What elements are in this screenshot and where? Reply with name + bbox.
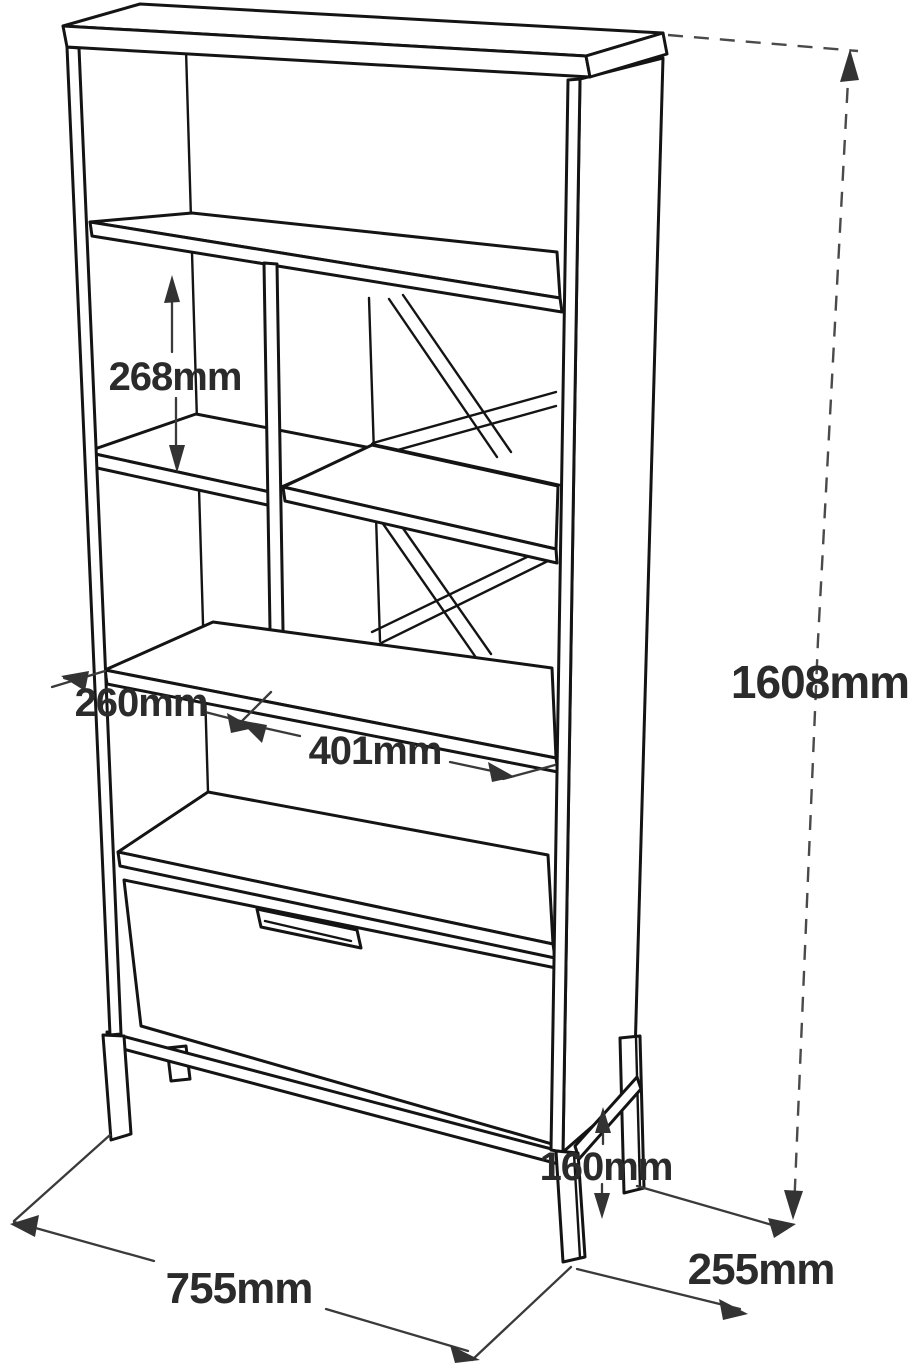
dim-label-leg-height: 160mm	[540, 1145, 673, 1189]
shelf-1	[90, 213, 562, 312]
x-brace-upper	[373, 295, 556, 457]
arrow-left-icon	[10, 1215, 39, 1237]
arrow-downright-icon	[719, 1299, 748, 1320]
arrow-up-icon	[164, 275, 180, 303]
dimension-overall-depth: 255mm	[577, 1245, 834, 1320]
bookcase-dimension-diagram: 268mm 260mm 401mm 1608mm 160mm	[0, 0, 913, 1367]
arrow-upleft-icon	[239, 720, 267, 743]
arrow-downright-icon	[488, 762, 515, 782]
dimension-overall-width: 755mm	[10, 1135, 571, 1363]
dim-label-left-width: 260mm	[75, 681, 208, 725]
dimension-diagram-page: 268mm 260mm 401mm 1608mm 160mm	[0, 0, 913, 1367]
arrow-up-icon	[840, 49, 859, 82]
dim-label-right-width: 401mm	[309, 729, 442, 773]
left-front-stile	[67, 47, 121, 1035]
top-panel	[63, 4, 667, 77]
arrow-right-icon	[450, 1345, 480, 1363]
dim-label-overall-depth: 255mm	[688, 1245, 835, 1294]
dim-label-shelf-height: 268mm	[109, 355, 242, 399]
arrow-upright-icon	[768, 1218, 796, 1238]
arrow-down-icon	[594, 1193, 610, 1219]
dim-label-overall-height: 1608mm	[731, 656, 909, 708]
arrow-down-icon	[784, 1190, 803, 1220]
dim-label-overall-width: 755mm	[166, 1264, 313, 1313]
dimension-overall-height: 1608mm	[637, 35, 909, 1238]
divider-panel	[264, 263, 284, 691]
